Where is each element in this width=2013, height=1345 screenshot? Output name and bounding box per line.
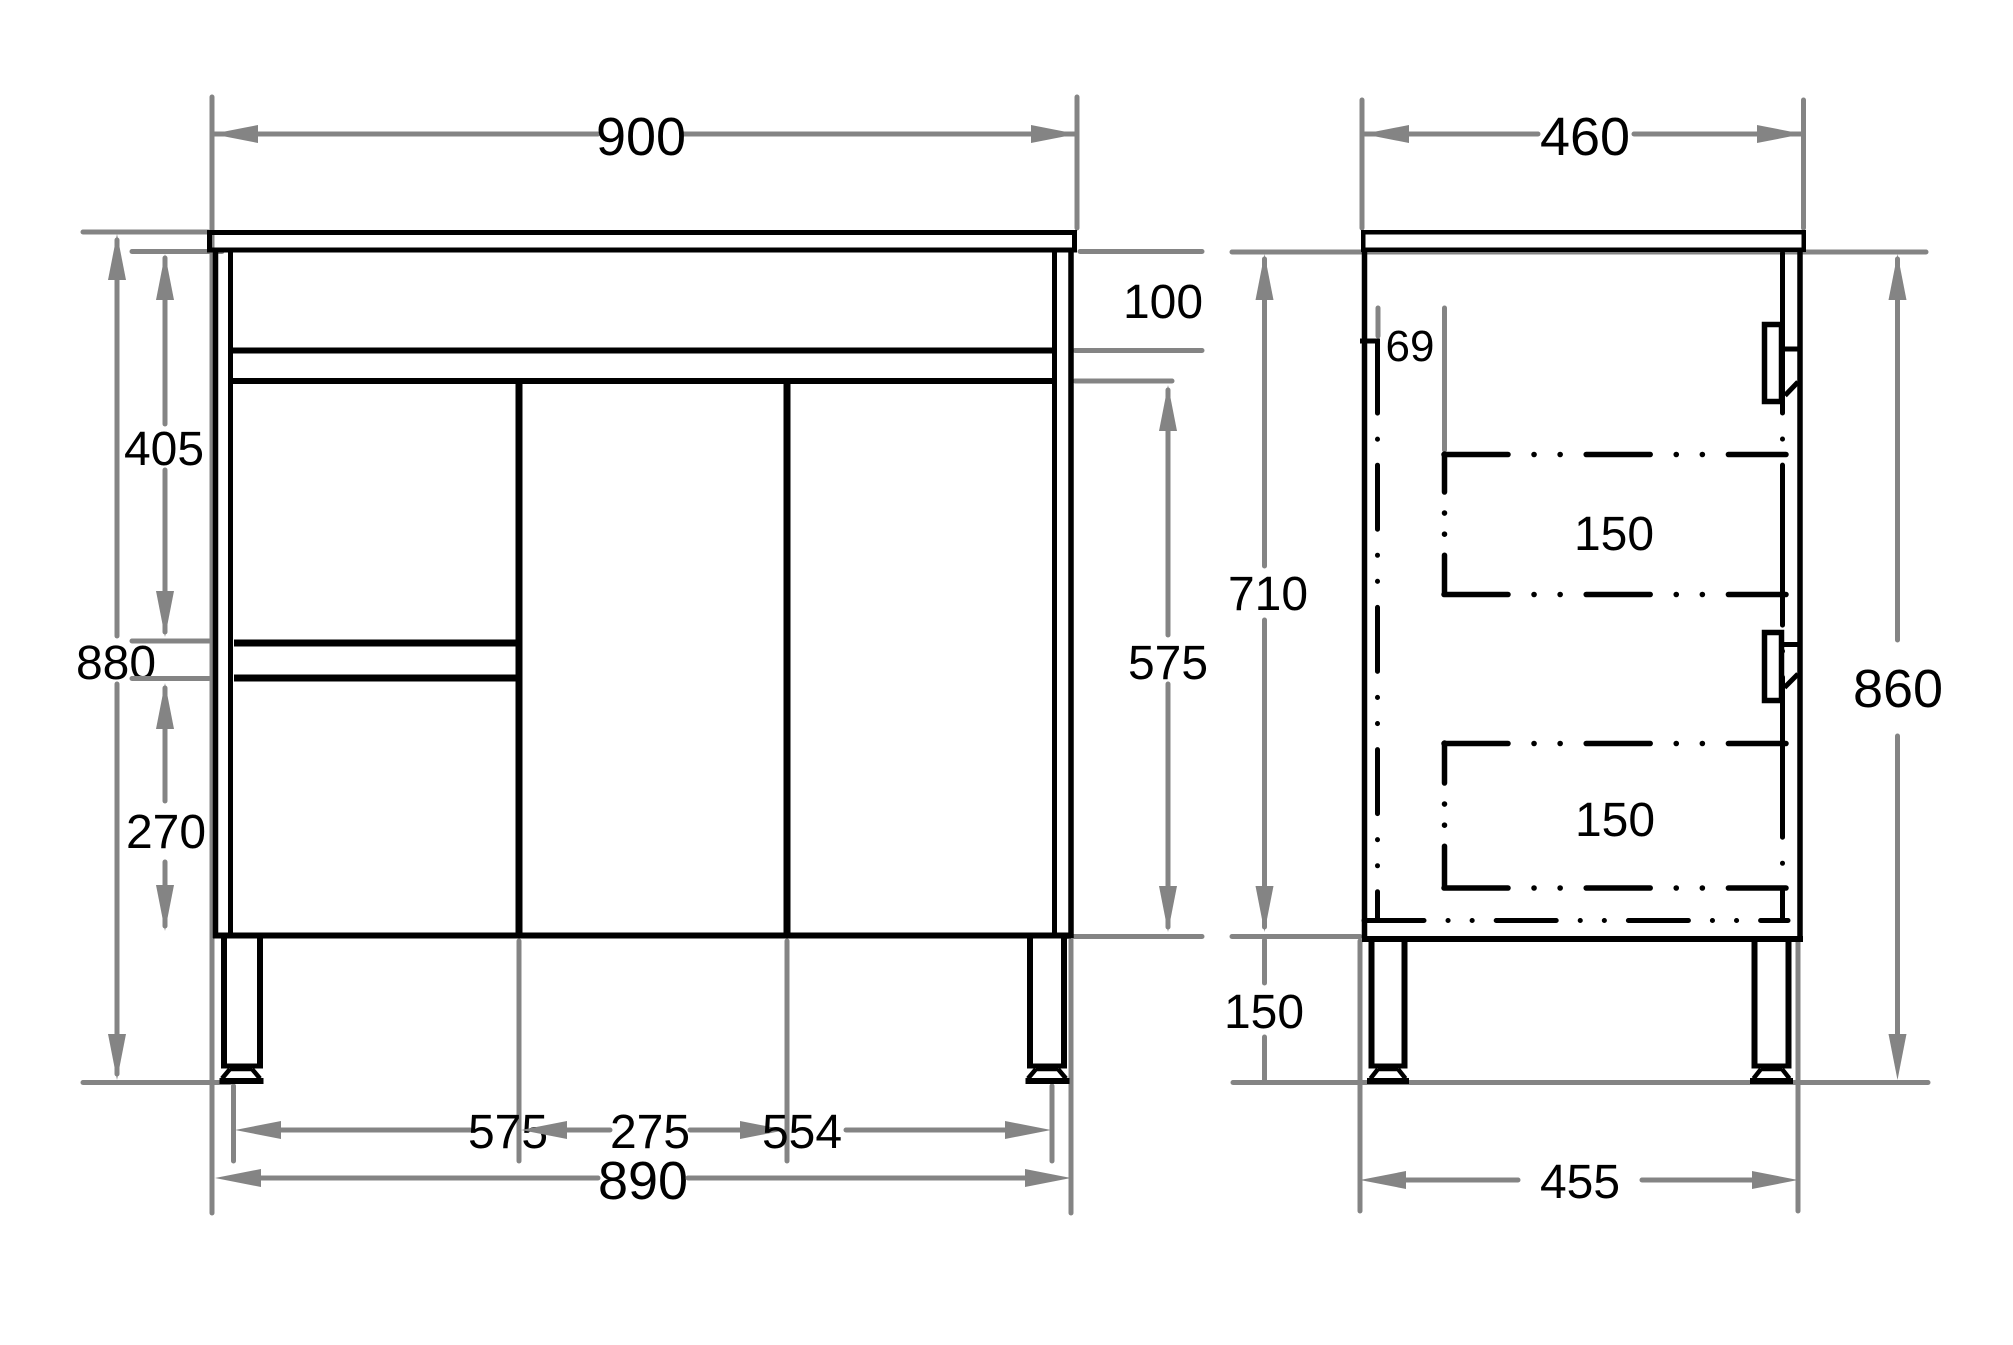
svg-text:554: 554: [762, 1106, 842, 1159]
svg-text:460: 460: [1540, 107, 1630, 167]
svg-text:150: 150: [1575, 794, 1655, 847]
svg-text:900: 900: [596, 107, 686, 167]
svg-text:150: 150: [1224, 986, 1304, 1039]
svg-text:100: 100: [1123, 276, 1203, 329]
svg-text:710: 710: [1228, 568, 1308, 621]
svg-text:455: 455: [1540, 1156, 1620, 1209]
svg-text:270: 270: [126, 806, 206, 859]
svg-text:150: 150: [1574, 508, 1654, 561]
svg-text:860: 860: [1853, 659, 1943, 719]
svg-text:890: 890: [598, 1151, 688, 1211]
svg-text:69: 69: [1386, 322, 1435, 371]
svg-text:575: 575: [1128, 637, 1208, 690]
svg-text:405: 405: [124, 423, 204, 476]
svg-text:880: 880: [76, 637, 156, 690]
